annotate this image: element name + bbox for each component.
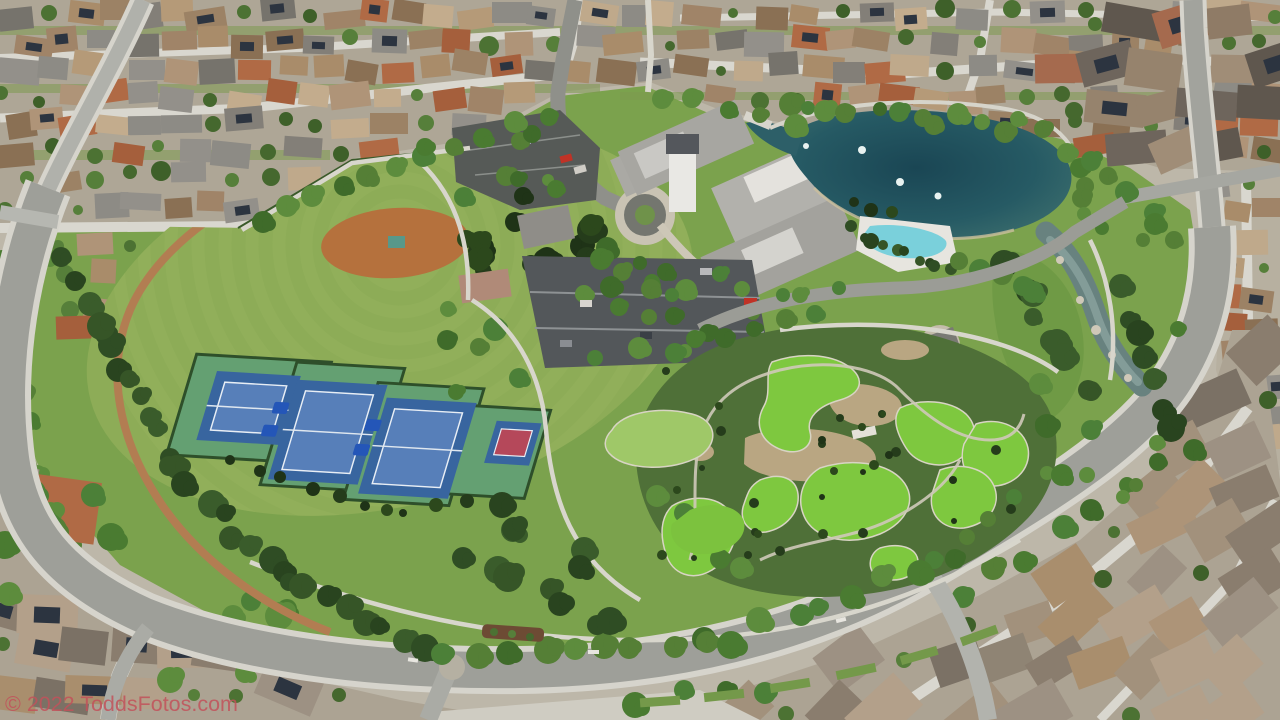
svg-text:© 2022 ToddsFotos.com: © 2022 ToddsFotos.com	[5, 692, 238, 716]
